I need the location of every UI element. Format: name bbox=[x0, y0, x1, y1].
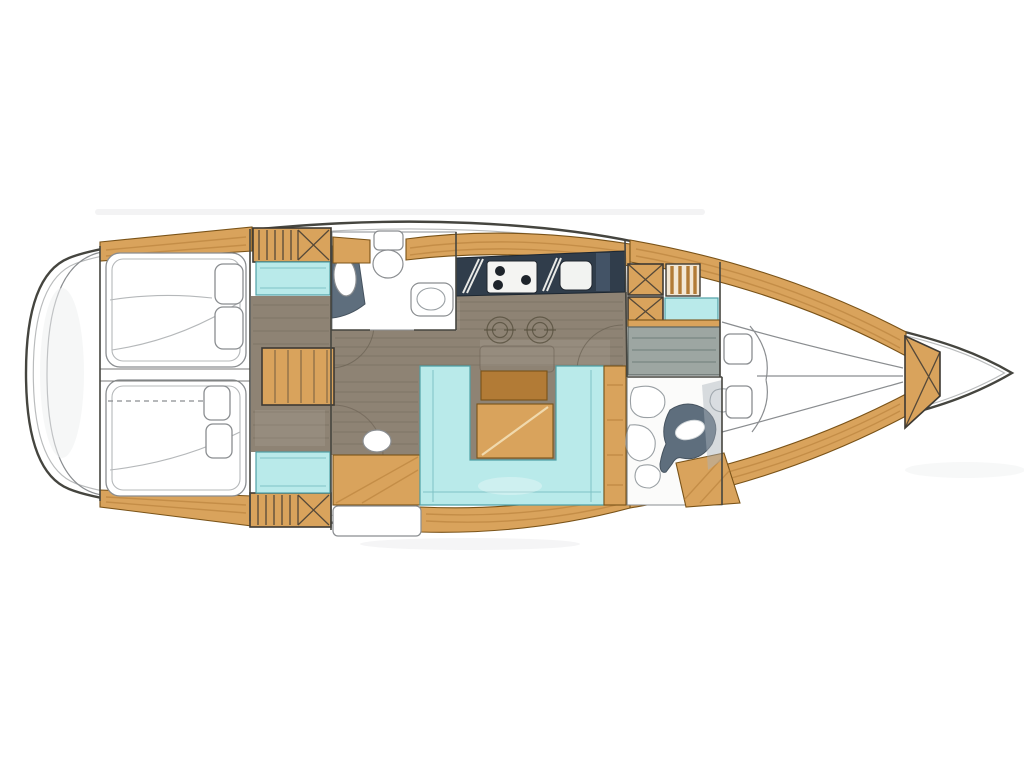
bow-locker bbox=[905, 336, 940, 428]
transom-wash bbox=[40, 288, 84, 458]
stove bbox=[487, 261, 537, 293]
galley-sink bbox=[560, 261, 592, 290]
floor-hatch-round bbox=[363, 430, 391, 452]
chart-seat bbox=[333, 506, 421, 536]
floor-plan-drawing bbox=[0, 0, 1024, 768]
galley bbox=[456, 251, 625, 296]
pillow bbox=[204, 386, 230, 420]
desk-wood-edge bbox=[628, 320, 720, 327]
settee-highlight bbox=[478, 477, 542, 495]
toilet-bowl bbox=[373, 250, 403, 278]
floor-hatch-wood bbox=[262, 348, 334, 405]
v-berth-cushion bbox=[724, 334, 752, 364]
v-berth-cushion bbox=[726, 386, 752, 418]
aft-cabin-bottom bbox=[106, 380, 246, 496]
settee-divider bbox=[604, 366, 626, 505]
chart-desk bbox=[628, 327, 720, 375]
pillow bbox=[206, 424, 232, 458]
pillow bbox=[215, 307, 243, 349]
companionway-hatch-bottom bbox=[250, 493, 331, 527]
deck-band-top-mid-a bbox=[333, 237, 370, 263]
table-leaf bbox=[481, 371, 547, 400]
companionway-hatch-top bbox=[253, 228, 331, 262]
toilet-tank bbox=[374, 231, 403, 250]
counter-top-left bbox=[256, 262, 330, 295]
nav-lockers-crossed bbox=[628, 264, 663, 326]
companionway-steps bbox=[666, 264, 700, 296]
floor-plan-stage bbox=[0, 0, 1024, 768]
saloon-table bbox=[477, 371, 553, 458]
u-shaped-settee bbox=[420, 366, 604, 505]
pillow bbox=[215, 264, 243, 304]
galley-counter-shade bbox=[596, 253, 610, 291]
aft-cabin-top bbox=[106, 253, 246, 367]
chart-area-wood-floor bbox=[333, 455, 420, 505]
